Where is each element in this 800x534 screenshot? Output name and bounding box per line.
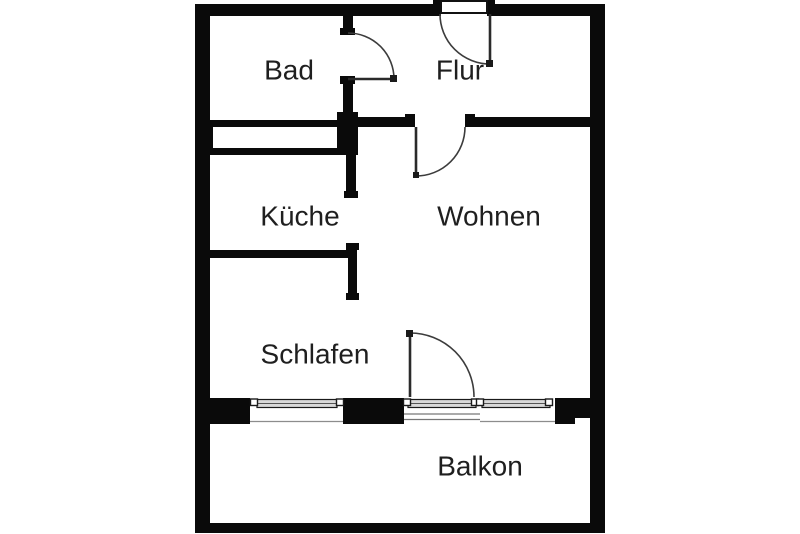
room-label-wohnen: Wohnen [437, 201, 541, 232]
flur-wohnen-wall [352, 114, 591, 178]
wall-balcony-bottom [195, 523, 605, 533]
wall-kueche-schlafen [195, 250, 353, 258]
window-right-bracket-b [546, 399, 553, 406]
bad-kueche-wall [195, 112, 358, 155]
window-left [250, 399, 344, 422]
kueche-wohnen-wall [344, 155, 359, 300]
wall-flur-wohnen-right [474, 117, 591, 127]
entrance-jamb-left [433, 0, 441, 16]
entrance-door-slab [441, 1, 487, 13]
balcony-wall-notch-step [555, 418, 575, 424]
wall-outer-right [590, 4, 605, 533]
room-label-bad: Bad [264, 55, 314, 86]
wohnen-door-arc [416, 127, 465, 176]
wohnen-leaf-tip [413, 172, 419, 178]
floorplan-svg: Bad Flur Küche Wohnen Schlafen Balkon [0, 0, 800, 534]
bad-bottom-wall [210, 120, 347, 127]
balcony-door [404, 330, 481, 420]
room-label-schlafen: Schlafen [261, 339, 370, 370]
window-left-bracket-b [337, 399, 344, 406]
passthrough-cap-left [195, 120, 213, 155]
wall-outer-left [195, 4, 210, 533]
bad-leaf-tip [390, 75, 397, 82]
balcony-wall-seg-mid [343, 398, 404, 424]
balcony-leaf-tip [406, 330, 413, 337]
passthrough-bottom-wall [205, 148, 347, 155]
entrance-jamb-right [487, 0, 495, 16]
wohnen-door-jamb-right [465, 114, 475, 127]
balcony-wall-seg-left [195, 398, 250, 424]
bad-flur-wall [340, 16, 397, 122]
balcony-door-bracket-a [404, 399, 411, 406]
wall-outer-top-left [195, 4, 433, 16]
floorplan-canvas: Bad Flur Küche Wohnen Schlafen Balkon [0, 0, 800, 534]
kueche-opening-cap-top [344, 191, 358, 198]
wall-bad-flur-upper [343, 16, 353, 30]
room-label-balkon: Balkon [437, 451, 523, 482]
kueche-stub-cap-bottom [346, 293, 359, 300]
balcony-door-arc [410, 333, 474, 397]
room-label-kueche: Küche [260, 201, 339, 232]
balcony-wall-seg-right [555, 398, 591, 418]
wall-flur-wohnen-left [352, 117, 408, 127]
entrance-leaf-tip [486, 60, 493, 67]
window-right-bracket-a [477, 399, 484, 406]
room-label-flur: Flur [436, 55, 484, 86]
wohnen-door-jamb-left [405, 114, 415, 127]
window-right [477, 399, 556, 422]
window-left-bracket-a [251, 399, 258, 406]
wall-outer-top-right [494, 4, 605, 16]
outer-walls [195, 4, 605, 533]
bad-door-arc [348, 33, 394, 79]
